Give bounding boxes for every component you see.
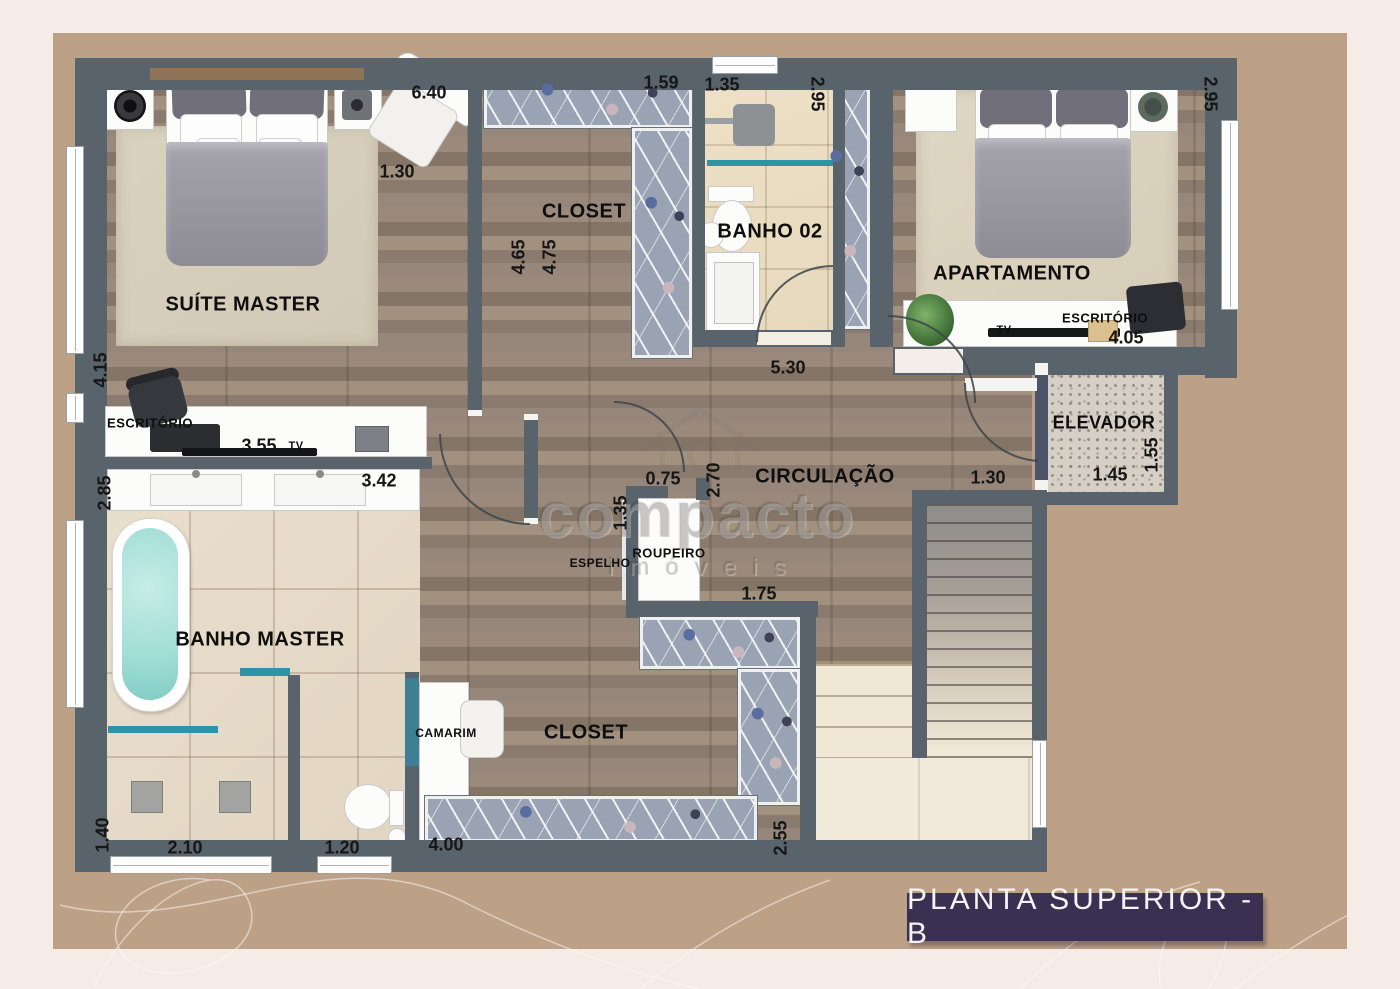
dim-closet2-depth: 2.55 — [771, 820, 792, 855]
apto-duvet — [975, 138, 1131, 258]
wall-cap-1 — [468, 410, 482, 416]
label-elevador: ELEVADOR — [1053, 413, 1156, 434]
window-wc-bottom — [317, 856, 392, 874]
plan-title-banner: PLANTA SUPERIOR - B — [907, 893, 1263, 941]
dim-suite-depth: 4.15 — [91, 352, 112, 387]
dim-roup-width: 1.75 — [741, 584, 776, 605]
dim-closet-len1: 4.65 — [509, 239, 530, 274]
dim-roup-depth: 1.35 — [611, 495, 632, 530]
wc-glass-top — [240, 668, 290, 676]
banho02-glass-shelf — [707, 160, 833, 166]
hall-wardrobe — [820, 73, 870, 329]
dim-circ-width: 5.30 — [770, 358, 805, 379]
pilaster-cap-bottom — [524, 518, 538, 524]
stairs-flight — [927, 504, 1032, 758]
wall-elev-bottom — [1035, 492, 1178, 505]
pilaster-cap-top — [524, 414, 538, 420]
dim-shower-depth: 1.40 — [93, 817, 114, 852]
dim-roup-door: 0.75 — [645, 469, 680, 490]
elev-door — [1035, 375, 1048, 492]
floor-plan-sheet: compacto imóveis SUÍTE MASTER CLOSET BAN… — [0, 0, 1400, 989]
closet-lower-wardrobe-top — [640, 617, 800, 669]
dim-banho02-width: 1.35 — [704, 75, 739, 96]
wall-closet-lower-right — [800, 617, 816, 842]
closet-lower-wardrobe-right — [738, 669, 800, 805]
speaker-round-icon — [114, 90, 146, 122]
elev-door-cap-top — [1035, 363, 1048, 375]
dim-banho-depth: 2.85 — [95, 475, 116, 510]
apto-door-opening — [895, 349, 963, 373]
wall-wc-partition — [288, 675, 300, 842]
label-suite-escritorio: ESCRITÓRIO — [107, 416, 193, 431]
shower-drain-right — [219, 781, 251, 813]
speaker-square-dot — [351, 99, 363, 111]
dim-suite-chair: 1.30 — [379, 162, 414, 183]
wall-closet-banho02 — [693, 88, 705, 334]
dim-circ-depth: 2.70 — [704, 462, 725, 497]
banho02-door-opening — [757, 332, 831, 345]
dim-elev-depth: 1.55 — [1142, 437, 1163, 472]
dim-elev-width: 1.45 — [1092, 465, 1127, 486]
shower-drain-left — [131, 781, 163, 813]
wall-hall-apto — [870, 88, 893, 347]
wall-stair-top — [912, 490, 1047, 504]
label-camarim: CAMARIM — [415, 726, 477, 740]
faucet-right-icon — [316, 470, 324, 478]
bathtub-water — [122, 528, 178, 700]
window-banho-left — [66, 520, 84, 708]
pilaster-suite-door — [524, 420, 538, 518]
label-closet-lower: CLOSET — [544, 722, 628, 745]
dim-shower-width: 2.10 — [167, 838, 202, 859]
plant-icon — [906, 294, 954, 346]
window-banho02-top — [712, 56, 778, 74]
banho-sink-right — [274, 474, 366, 506]
label-roupeiro: ROUPEIRO — [632, 546, 705, 561]
wall-closet-lower-top — [626, 601, 818, 617]
plan-title: PLANTA SUPERIOR - B — [907, 883, 1263, 951]
stairs-side-steps — [810, 664, 912, 758]
wc-toilet-bowl — [344, 784, 392, 830]
window-suite-left — [66, 146, 84, 354]
label-apto-escritorio: ESCRITÓRIO — [1062, 311, 1148, 326]
apto-nightstand-left — [905, 84, 957, 132]
dim-tv-width: 3.55 — [241, 436, 276, 457]
closet-top-wardrobe-right — [632, 128, 692, 358]
stairs-landing — [810, 758, 1032, 840]
dim-wc-width: 1.20 — [324, 838, 359, 859]
dim-apto-width: 4.05 — [1108, 328, 1143, 349]
label-closet-top: CLOSET — [542, 201, 626, 224]
dim-closet2-width: 4.00 — [428, 835, 463, 856]
apto-back-pillow-left — [980, 88, 1052, 128]
window-stair-right — [1032, 740, 1047, 828]
window-apto-right — [1221, 120, 1239, 310]
label-banho-master: BANHO MASTER — [175, 629, 344, 652]
wall-stair-left — [912, 504, 927, 758]
dim-apto-depth: 2.95 — [1200, 76, 1221, 111]
label-banho02: BANHO 02 — [717, 221, 822, 244]
label-circulacao: CIRCULAÇÃO — [755, 466, 894, 489]
apto-back-pillow-right — [1056, 88, 1128, 128]
suite-panel-box — [355, 426, 389, 452]
window-shower-bottom — [110, 856, 272, 874]
label-espelho: ESPELHO — [570, 556, 631, 570]
faucet-left-icon — [192, 470, 200, 478]
closet-lower-wardrobe-bottom — [425, 796, 757, 842]
dim-banho-width: 3.42 — [361, 471, 396, 492]
suite-headboard — [150, 68, 364, 80]
dim-banho02-depth: 2.95 — [807, 76, 828, 111]
label-apartamento: APARTAMENTO — [933, 263, 1091, 286]
wall-suite-closet — [468, 88, 482, 416]
label-apto-tv: TV — [996, 324, 1011, 336]
stair-hall-niche — [965, 378, 1037, 391]
camarim-glass — [405, 678, 419, 766]
dim-suite-width: 6.40 — [411, 83, 446, 104]
label-suite-tv: TV — [288, 440, 303, 452]
label-suite-master: SUÍTE MASTER — [166, 294, 321, 317]
banho-sink-left — [150, 474, 242, 506]
dim-closet-len2: 4.75 — [540, 239, 561, 274]
wall-tv-suite — [105, 457, 432, 469]
suite-duvet — [166, 142, 328, 266]
shower-head-icon — [733, 104, 775, 146]
window-escritorio-left — [66, 393, 84, 423]
dim-stair-door: 1.30 — [970, 468, 1005, 489]
dim-closet-top-door: 1.59 — [643, 73, 678, 94]
apto-speaker-icon — [1138, 92, 1168, 122]
wall-elev-right — [1164, 350, 1178, 505]
wc-toilet-tank — [389, 790, 404, 826]
banho02-vanity-basin — [714, 262, 754, 324]
shower-glass-shelf — [108, 726, 218, 733]
